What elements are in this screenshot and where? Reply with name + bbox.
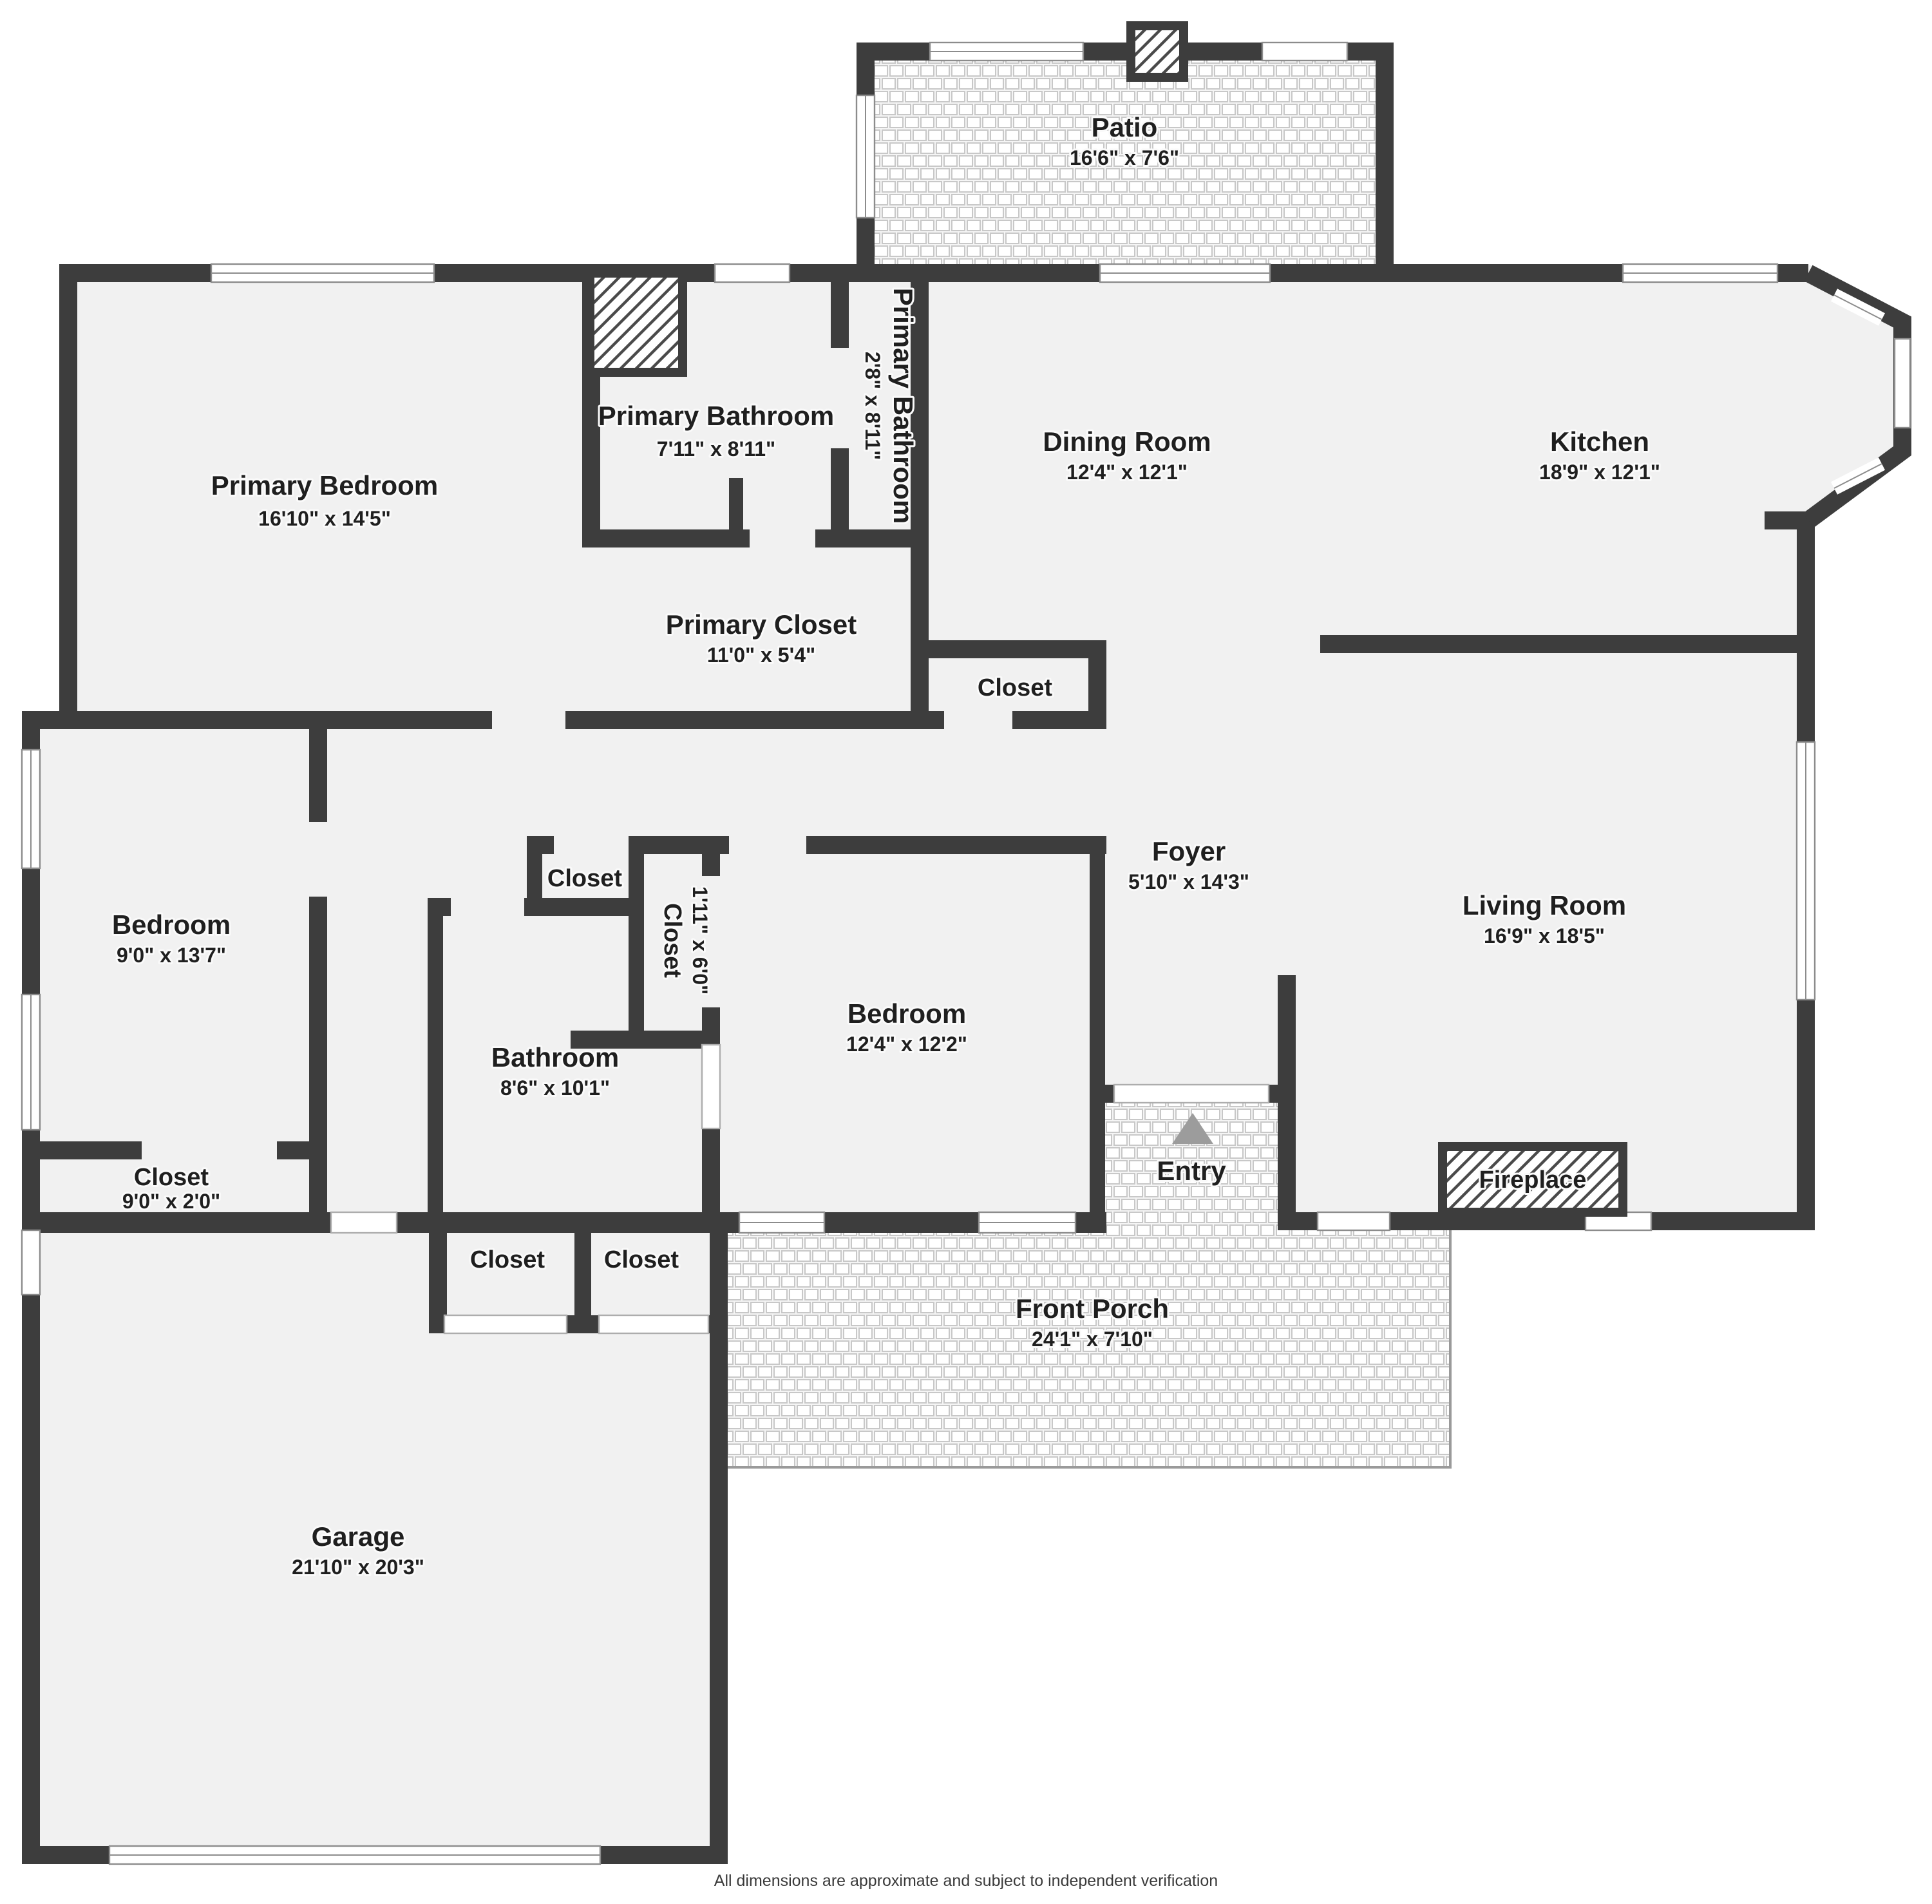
- wall-primary-bath-stub: [729, 478, 743, 547]
- window-living-bottom-1: [1318, 1212, 1390, 1230]
- label-front-porch: Front Porch: [1016, 1293, 1169, 1324]
- dims-primary-bathroom-2: 2'8" x 8'11": [861, 352, 884, 460]
- dims-primary-bathroom: 7'11" x 8'11": [657, 437, 775, 461]
- front-door: [1114, 1085, 1269, 1103]
- dims-kitchen: 18'9" x 12'1": [1539, 461, 1660, 484]
- wall-garage-right: [710, 1212, 728, 1864]
- wall-left-bedroom-right: [309, 711, 327, 1233]
- wall-middle-bedroom-right: [1090, 836, 1105, 1233]
- window-garage-left: [22, 1230, 40, 1295]
- door-garage-closet2: [599, 1315, 708, 1333]
- window-patio-top-2: [1262, 43, 1347, 61]
- label-primary-bedroom: Primary Bedroom: [211, 470, 438, 500]
- wall-patio-right: [1376, 43, 1394, 282]
- wall-vert-closet-left: [629, 836, 644, 1045]
- door-bath-to-closet: [750, 529, 815, 547]
- floors: [22, 61, 1902, 1864]
- label-garage-closet-2: Closet: [604, 1246, 679, 1273]
- chimney: [1131, 26, 1184, 77]
- label-primary-bathroom-2-group: Primary Bathroom: [888, 288, 918, 524]
- label-bedroom-left: Bedroom: [112, 909, 231, 940]
- dims-closet-left: 9'0" x 2'0": [122, 1190, 220, 1213]
- door-bath-separator: [831, 348, 849, 448]
- dims-bedroom-left: 9'0" x 13'7": [117, 944, 226, 967]
- wall-garage-closet-separator: [574, 1212, 591, 1333]
- label-primary-bathroom-2: Primary Bathroom: [888, 288, 918, 524]
- label-entry: Entry: [1157, 1156, 1226, 1186]
- dims-primary-closet: 11'0" x 5'4": [707, 643, 815, 667]
- wall-primary-bedroom-left: [59, 264, 77, 729]
- dims-foyer: 5'10" x 14'3": [1128, 870, 1249, 893]
- label-closet-vertical: Closet: [659, 903, 686, 978]
- window-primary-bath-top: [715, 264, 790, 282]
- label-patio: Patio: [1092, 112, 1158, 142]
- dims-closet-vertical: 1'11" x 6'0": [688, 886, 712, 995]
- dims-bedroom-middle: 12'4" x 12'2": [846, 1033, 967, 1056]
- label-hall-closet: Closet: [978, 674, 1052, 701]
- label-bathroom: Bathroom: [491, 1042, 619, 1072]
- floor-plan: Patio 16'6" x 7'6" Primary Bedroom 16'10…: [0, 0, 1932, 1904]
- wall-front-band: [22, 1212, 1106, 1233]
- label-fireplace: Fireplace: [1479, 1166, 1587, 1194]
- window-bay-center: [1895, 339, 1910, 428]
- dims-closet-vertical-group: 1'11" x 6'0": [688, 886, 712, 995]
- dims-bathroom: 8'6" x 10'1": [500, 1076, 610, 1100]
- footer-disclaimer: All dimensions are approximate and subje…: [714, 1872, 1218, 1890]
- door-middle-bedroom: [729, 836, 806, 854]
- door-garage-closet1: [444, 1315, 567, 1333]
- label-closet-small: Closet: [547, 865, 622, 892]
- label-garage: Garage: [312, 1521, 405, 1552]
- wall-hall-closet-top: [911, 640, 1106, 658]
- label-garage-closet-1: Closet: [470, 1246, 545, 1273]
- door-left-bedroom: [309, 822, 327, 897]
- wall-bathroom-left: [428, 898, 443, 1230]
- door-bathroom: [451, 898, 524, 916]
- wall-kitchen-bottom: [1320, 635, 1815, 653]
- label-primary-bathroom: Primary Bathroom: [598, 401, 834, 431]
- label-closet-left: Closet: [134, 1164, 209, 1191]
- dims-front-porch: 24'1" x 7'10": [1032, 1328, 1153, 1351]
- door-bedroom-closet-2: [702, 1045, 720, 1128]
- label-living-room: Living Room: [1463, 890, 1626, 920]
- dims-dining-room: 12'4" x 12'1": [1066, 461, 1188, 484]
- label-primary-closet: Primary Closet: [666, 609, 857, 640]
- door-small-closet: [554, 836, 629, 854]
- door-left-closet: [142, 1141, 277, 1159]
- wall-hall-closet-right: [1088, 640, 1106, 729]
- label-kitchen: Kitchen: [1550, 426, 1649, 457]
- dims-primary-bedroom: 16'10" x 14'5": [258, 507, 391, 530]
- door-garage-entry: [331, 1212, 397, 1233]
- label-closet-vertical-group: Closet: [659, 903, 686, 978]
- dims-living-room: 16'9" x 18'5": [1484, 924, 1605, 947]
- label-bedroom-middle: Bedroom: [848, 998, 966, 1029]
- floor-plan-page: Patio 16'6" x 7'6" Primary Bedroom 16'10…: [0, 0, 1932, 1904]
- door-hall-closet: [944, 711, 1012, 729]
- dims-garage: 21'10" x 20'3": [292, 1556, 424, 1579]
- dims-primary-bathroom-2-group: 2'8" x 8'11": [861, 352, 884, 460]
- wall-foyer-living: [1278, 975, 1296, 1230]
- dims-patio: 16'6" x 7'6": [1070, 146, 1179, 169]
- door-primary-bedroom: [492, 711, 565, 729]
- label-dining-room: Dining Room: [1043, 426, 1211, 457]
- wall-small-closet-left: [527, 836, 542, 916]
- shower: [590, 273, 683, 372]
- label-foyer: Foyer: [1152, 836, 1226, 866]
